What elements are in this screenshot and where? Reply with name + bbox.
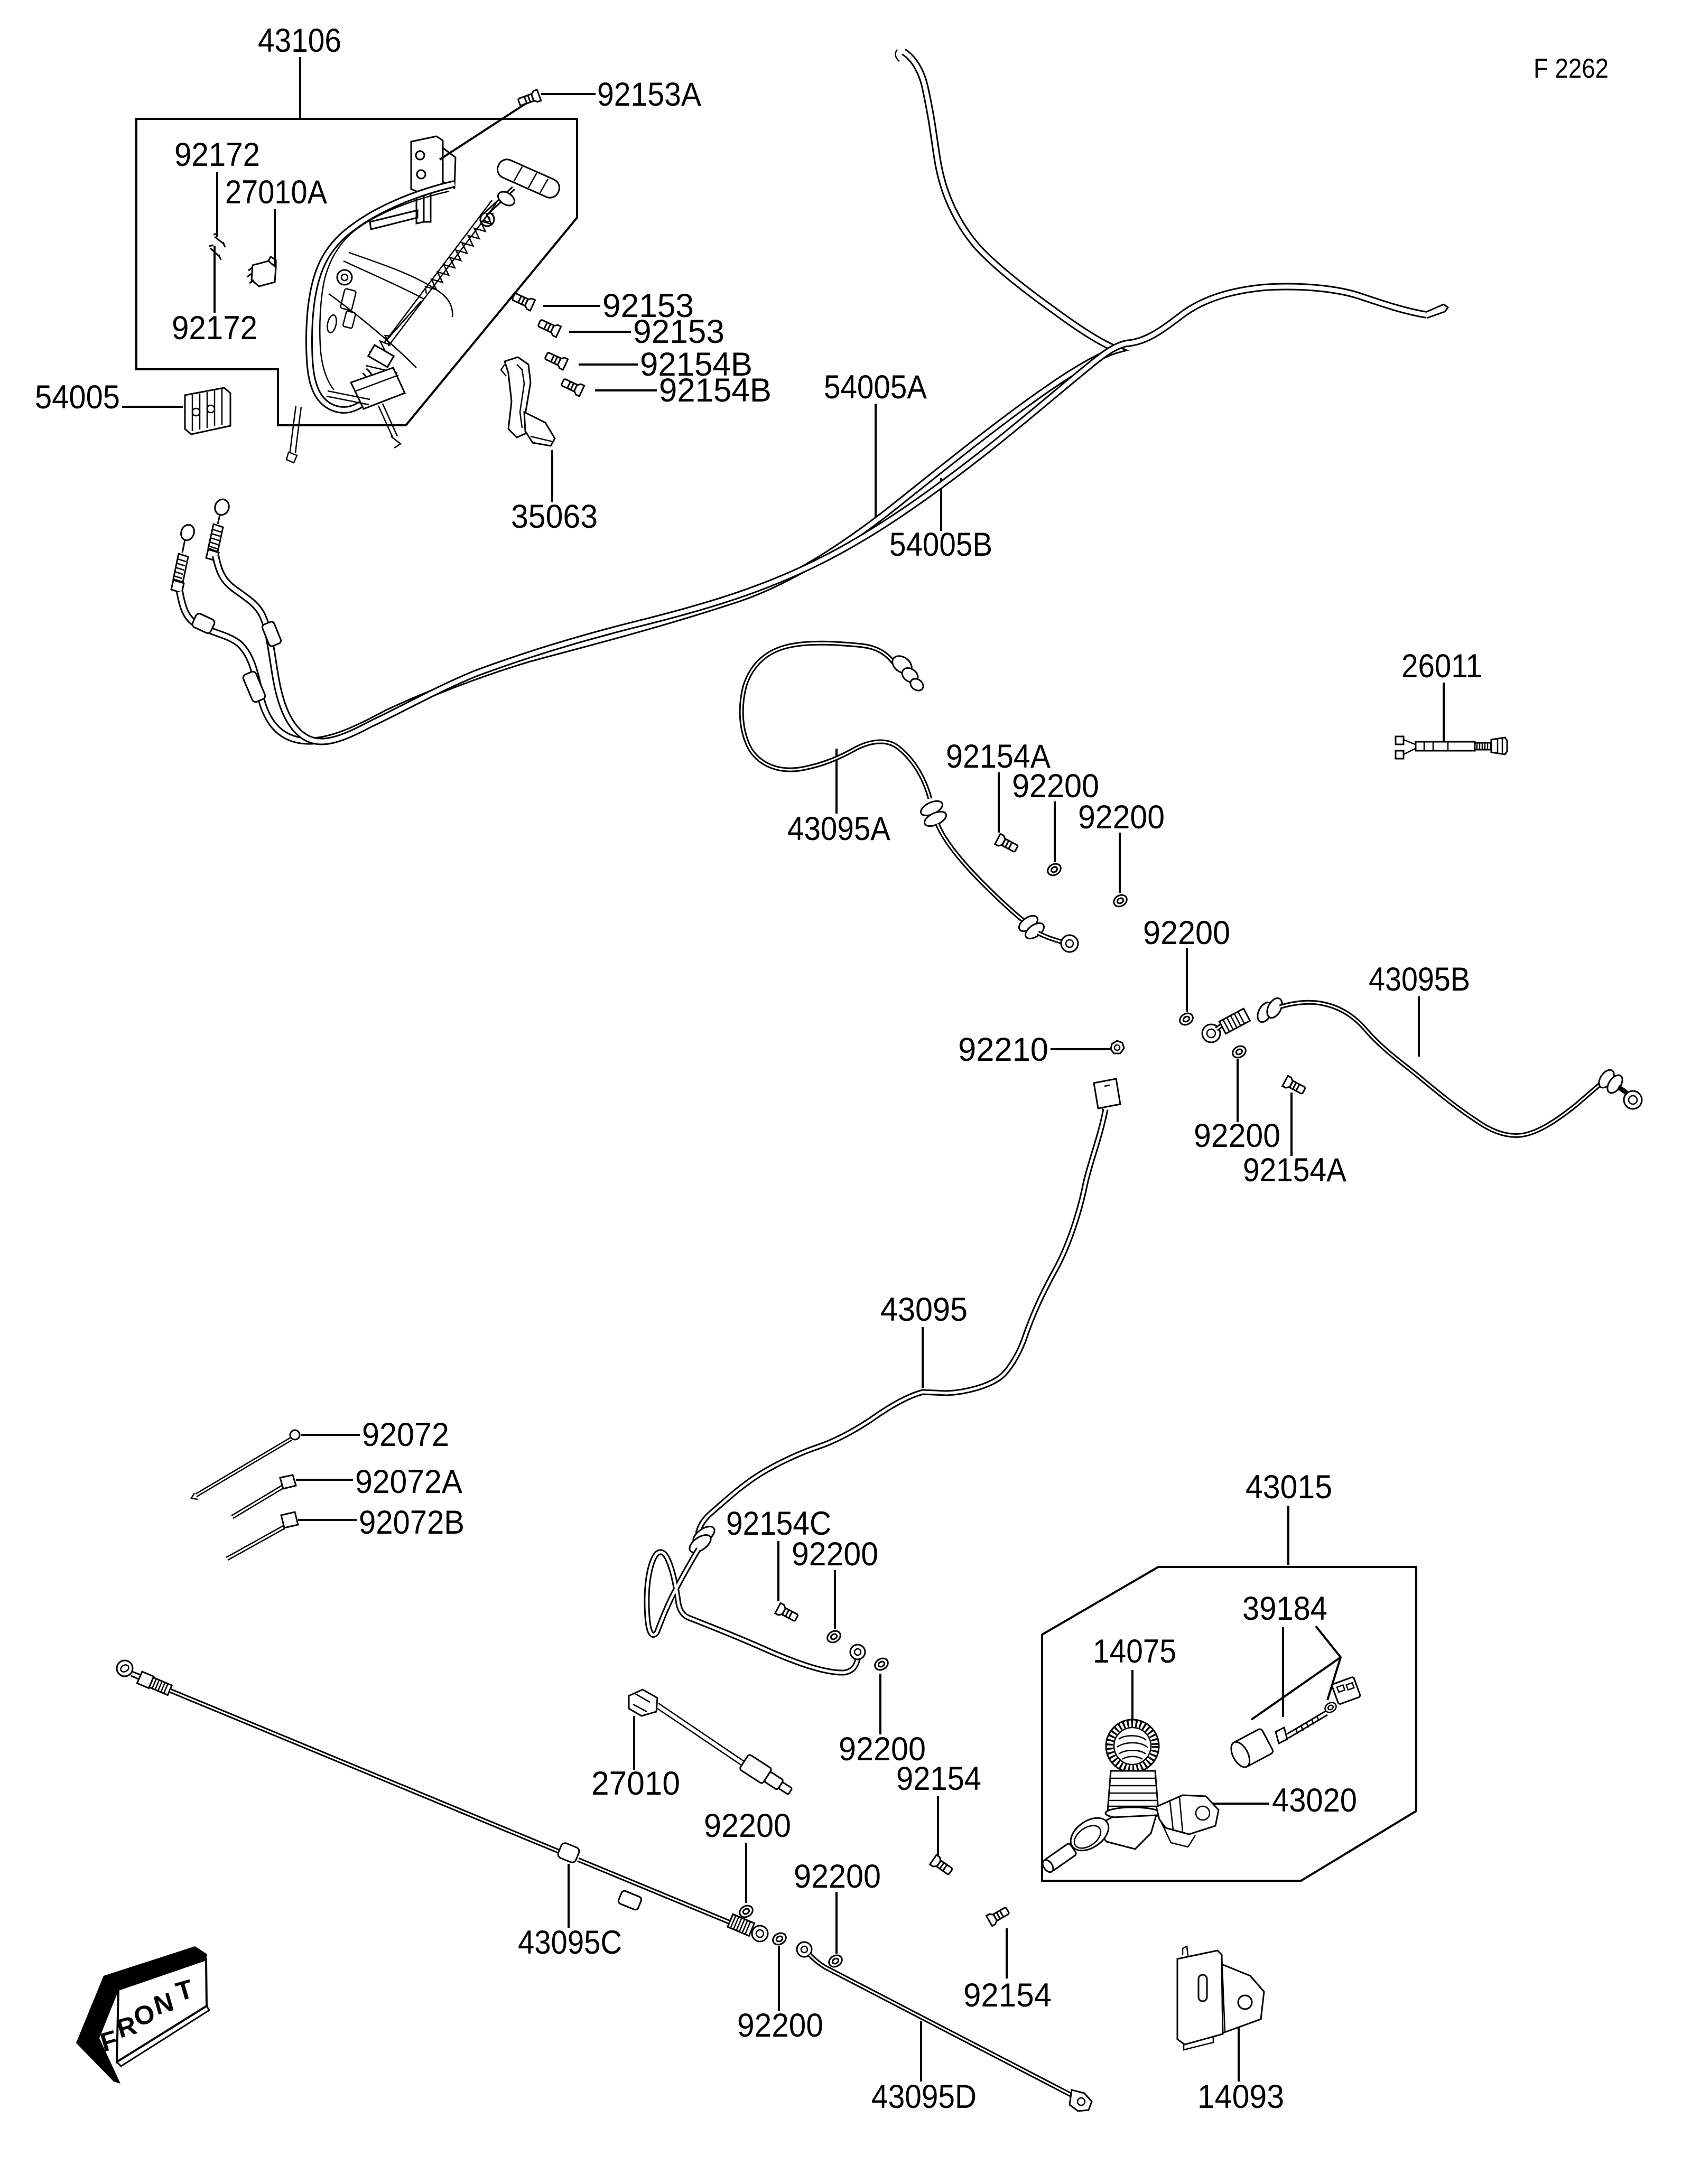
svg-text:F 2262: F 2262 <box>1534 53 1609 84</box>
svg-text:92154B: 92154B <box>659 372 772 409</box>
svg-text:92200: 92200 <box>737 2007 823 2044</box>
svg-text:92072A: 92072A <box>355 1463 462 1500</box>
svg-text:92154A: 92154A <box>1243 1152 1346 1189</box>
svg-text:92072B: 92072B <box>359 1504 464 1541</box>
svg-text:92200: 92200 <box>792 1536 878 1573</box>
svg-text:27010A: 27010A <box>225 174 327 211</box>
svg-text:43095D: 43095D <box>871 2078 977 2115</box>
svg-text:43095C: 43095C <box>518 1924 622 1961</box>
svg-text:14093: 14093 <box>1197 2078 1284 2115</box>
svg-text:43095A: 43095A <box>787 810 890 847</box>
svg-text:54005A: 54005A <box>824 369 927 406</box>
svg-text:92153A: 92153A <box>597 76 701 113</box>
svg-text:35063: 35063 <box>511 498 598 535</box>
svg-text:54005: 54005 <box>35 379 120 416</box>
svg-text:92200: 92200 <box>704 1807 791 1844</box>
svg-text:54005B: 54005B <box>889 526 992 563</box>
svg-text:92172: 92172 <box>174 136 260 173</box>
svg-text:43020: 43020 <box>1272 1782 1357 1819</box>
svg-text:43095B: 43095B <box>1369 961 1470 998</box>
svg-text:43106: 43106 <box>258 22 341 59</box>
svg-text:27010: 27010 <box>591 1765 680 1802</box>
svg-text:92154: 92154 <box>896 1760 981 1797</box>
svg-text:92072: 92072 <box>362 1416 449 1453</box>
svg-text:43095: 43095 <box>880 1291 968 1328</box>
svg-text:92200: 92200 <box>1078 799 1165 836</box>
svg-text:92200: 92200 <box>1143 914 1230 951</box>
svg-text:92200: 92200 <box>1194 1117 1280 1154</box>
svg-text:92153: 92153 <box>633 313 724 350</box>
svg-text:92210: 92210 <box>958 1031 1048 1068</box>
svg-text:92200: 92200 <box>794 1858 881 1895</box>
svg-text:14075: 14075 <box>1093 1633 1176 1670</box>
svg-text:92172: 92172 <box>172 310 257 347</box>
svg-text:43015: 43015 <box>1246 1469 1332 1506</box>
svg-text:39184: 39184 <box>1242 1590 1327 1627</box>
svg-text:26011: 26011 <box>1401 648 1482 685</box>
svg-text:92154: 92154 <box>963 1977 1052 2014</box>
